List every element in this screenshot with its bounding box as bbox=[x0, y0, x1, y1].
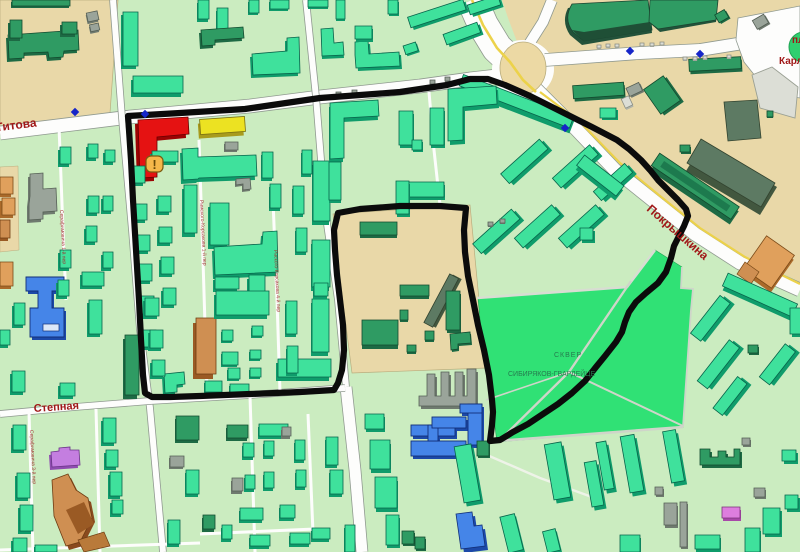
svg-text:Карл: Карл bbox=[779, 56, 800, 67]
svg-text:СИБИРЯКОВ-ГВАРДЕЙЦЕ: СИБИРЯКОВ-ГВАРДЕЙЦЕ bbox=[508, 369, 595, 378]
svg-text:СКВЕР: СКВЕР bbox=[554, 352, 582, 359]
svg-text:!: ! bbox=[152, 157, 156, 172]
svg-text:пл.: пл. bbox=[792, 35, 800, 46]
